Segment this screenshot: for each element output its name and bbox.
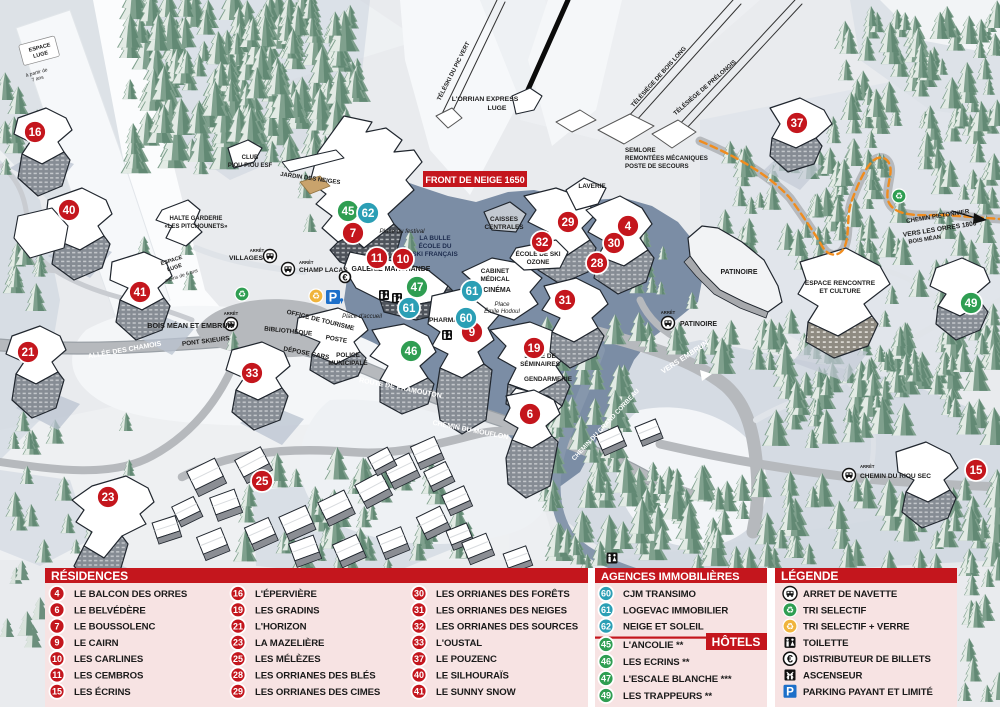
- svg-text:ARRÊT: ARRÊT: [860, 464, 875, 469]
- svg-text:L'OUSTAL: L'OUSTAL: [436, 638, 482, 649]
- svg-text:POSTE DE SECOURS: POSTE DE SECOURS: [625, 163, 689, 170]
- svg-text:32: 32: [536, 237, 549, 249]
- svg-text:LES ORRIANES DES NEIGES: LES ORRIANES DES NEIGES: [436, 605, 568, 616]
- svg-text:PARKING PAYANT ET LIMITÉ: PARKING PAYANT ET LIMITÉ: [803, 686, 933, 698]
- svg-text:29: 29: [233, 687, 243, 697]
- svg-text:61: 61: [601, 605, 611, 615]
- svg-text:60: 60: [601, 589, 611, 599]
- svg-text:GALERIE MARCHANDE: GALERIE MARCHANDE: [352, 266, 431, 273]
- svg-text:LES ORRIANES DES BLÉS: LES ORRIANES DES BLÉS: [255, 670, 376, 682]
- svg-text:11: 11: [371, 253, 384, 265]
- svg-text:Place: Place: [494, 302, 510, 308]
- svg-text:MUNICIPALE: MUNICIPALE: [328, 360, 368, 367]
- svg-text:61: 61: [403, 303, 416, 315]
- svg-text:LES GRADINS: LES GRADINS: [255, 605, 320, 616]
- svg-text:9: 9: [54, 638, 59, 648]
- svg-text:SKI FRANÇAIS: SKI FRANÇAIS: [412, 251, 458, 258]
- svg-text:VILLAGES: VILLAGES: [229, 255, 263, 262]
- svg-text:33: 33: [414, 638, 424, 648]
- svg-text:ET CULTURE: ET CULTURE: [819, 288, 861, 295]
- svg-text:11: 11: [52, 670, 62, 680]
- svg-text:LÉGENDE: LÉGENDE: [781, 568, 838, 583]
- svg-text:♻: ♻: [786, 605, 794, 615]
- svg-text:LOGEVAC IMMOBILIER: LOGEVAC IMMOBILIER: [623, 605, 728, 616]
- svg-text:CLUB: CLUB: [242, 155, 259, 161]
- svg-text:37: 37: [414, 654, 424, 664]
- svg-text:HÔTELS: HÔTELS: [712, 634, 761, 649]
- svg-text:60: 60: [460, 313, 473, 325]
- svg-text:10: 10: [397, 254, 410, 266]
- svg-text:GENDARMERIE: GENDARMERIE: [524, 376, 573, 383]
- svg-text:REMONTÉES MÉCANIQUES: REMONTÉES MÉCANIQUES: [625, 154, 708, 162]
- svg-text:LUGE: LUGE: [488, 105, 507, 112]
- svg-text:47: 47: [601, 674, 611, 684]
- svg-text:40: 40: [63, 205, 76, 217]
- svg-text:LE BELVÉDÈRE: LE BELVÉDÈRE: [74, 604, 146, 616]
- svg-text:POLICE: POLICE: [336, 352, 361, 359]
- svg-text:25: 25: [233, 654, 243, 664]
- svg-text:45: 45: [601, 640, 611, 650]
- svg-text:19: 19: [528, 343, 541, 355]
- svg-text:LE SILHOURAÏS: LE SILHOURAÏS: [436, 671, 509, 682]
- svg-text:21: 21: [22, 347, 35, 359]
- svg-text:62: 62: [601, 621, 611, 631]
- svg-text:L'ANCOLIE **: L'ANCOLIE **: [623, 640, 684, 651]
- svg-text:LES ORRIANES DES CIMES: LES ORRIANES DES CIMES: [255, 687, 381, 698]
- svg-text:SÉMINAIRES: SÉMINAIRES: [520, 359, 561, 368]
- svg-text:33: 33: [246, 368, 259, 380]
- svg-text:L'ESCALE BLANCHE ***: L'ESCALE BLANCHE ***: [623, 674, 732, 685]
- svg-text:CHEMIN DU RIOU SEC: CHEMIN DU RIOU SEC: [860, 473, 931, 480]
- svg-text:LES ORRIANES DES FORÊTS: LES ORRIANES DES FORÊTS: [436, 588, 570, 600]
- svg-text:10: 10: [52, 654, 62, 664]
- svg-text:19: 19: [233, 605, 243, 615]
- svg-text:46: 46: [405, 346, 418, 358]
- svg-text:AGENCES IMMOBILIÈRES: AGENCES IMMOBILIÈRES: [601, 570, 740, 583]
- svg-text:21: 21: [233, 621, 243, 631]
- svg-text:41: 41: [414, 687, 424, 697]
- svg-text:29: 29: [562, 217, 575, 229]
- svg-text:TRI SELECTIF: TRI SELECTIF: [803, 605, 867, 616]
- svg-text:PATINOIRE: PATINOIRE: [720, 269, 757, 276]
- svg-text:ARRÊT: ARRÊT: [250, 248, 265, 253]
- svg-text:PIOU PIOU ESF: PIOU PIOU ESF: [228, 163, 273, 169]
- svg-text:23: 23: [233, 638, 243, 648]
- svg-text:DISTRIBUTEUR DE BILLETS: DISTRIBUTEUR DE BILLETS: [803, 654, 931, 665]
- svg-text:ESPACE RENCONTRE: ESPACE RENCONTRE: [805, 280, 876, 287]
- svg-text:♻: ♻: [786, 621, 794, 631]
- svg-text:L'HORIZON: L'HORIZON: [255, 622, 307, 633]
- svg-text:ARRÊT: ARRÊT: [661, 310, 676, 315]
- svg-text:LE BOUSSOLENC: LE BOUSSOLENC: [74, 622, 155, 633]
- svg-text:NEIGE ET SOLEIL: NEIGE ET SOLEIL: [623, 622, 704, 633]
- svg-text:FRONT DE NEIGE 1650: FRONT DE NEIGE 1650: [425, 175, 524, 185]
- svg-text:61: 61: [466, 286, 479, 298]
- svg-text:31: 31: [414, 605, 424, 615]
- svg-text:LE CAIRN: LE CAIRN: [74, 638, 119, 649]
- svg-text:31: 31: [559, 295, 572, 307]
- svg-text:Place du festival: Place du festival: [379, 228, 425, 235]
- svg-text:28: 28: [591, 258, 604, 270]
- svg-text:37: 37: [791, 118, 804, 130]
- svg-text:LES CARLINES: LES CARLINES: [74, 654, 144, 665]
- svg-text:LA MAZELIÈRE: LA MAZELIÈRE: [255, 637, 325, 649]
- svg-text:MÉDICAL: MÉDICAL: [480, 274, 509, 283]
- svg-text:LA BULLE: LA BULLE: [419, 235, 451, 242]
- svg-text:7: 7: [54, 621, 59, 631]
- svg-text:CJM TRANSIMO: CJM TRANSIMO: [623, 589, 697, 600]
- svg-text:LAVERIE: LAVERIE: [578, 183, 606, 190]
- svg-text:L'ÉPERVIÈRE: L'ÉPERVIÈRE: [255, 588, 317, 600]
- svg-text:49: 49: [965, 298, 978, 310]
- svg-text:OZONE: OZONE: [527, 259, 550, 266]
- svg-text:LES ÉCRINS: LES ÉCRINS: [74, 686, 131, 698]
- svg-text:PATINOIRE: PATINOIRE: [680, 321, 717, 328]
- svg-text:HALTE GARDERIE: HALTE GARDERIE: [170, 216, 223, 222]
- svg-text:46: 46: [601, 657, 611, 667]
- svg-text:TRI SELECTIF + VERRE: TRI SELECTIF + VERRE: [803, 622, 910, 633]
- svg-text:40: 40: [414, 670, 424, 680]
- svg-text:7: 7: [350, 228, 356, 240]
- svg-text:LES ORRIANES DES SOURCES: LES ORRIANES DES SOURCES: [436, 622, 579, 633]
- svg-text:CAISSES: CAISSES: [490, 216, 519, 223]
- svg-text:LE POUZENC: LE POUZENC: [436, 654, 497, 665]
- svg-text:€: €: [787, 654, 793, 666]
- svg-text:LES TRAPPEURS **: LES TRAPPEURS **: [623, 691, 712, 702]
- svg-text:47: 47: [411, 282, 424, 294]
- svg-text:4: 4: [625, 221, 632, 233]
- svg-text:4: 4: [54, 589, 59, 599]
- svg-text:Émile Hodoul: Émile Hodoul: [484, 308, 520, 315]
- svg-text:16: 16: [29, 127, 42, 139]
- svg-text:P: P: [329, 290, 337, 304]
- svg-text:€: €: [342, 272, 348, 282]
- svg-text:RÉSIDENCES: RÉSIDENCES: [51, 568, 128, 583]
- svg-text:ARRÊT: ARRÊT: [224, 311, 239, 316]
- svg-text:25: 25: [256, 476, 269, 488]
- svg-text:♻: ♻: [238, 289, 246, 299]
- svg-text:TOILETTE: TOILETTE: [803, 638, 849, 649]
- svg-text:♻: ♻: [895, 191, 903, 201]
- svg-text:15: 15: [970, 465, 983, 477]
- svg-text:P: P: [786, 685, 794, 698]
- svg-text:LE SUNNY SNOW: LE SUNNY SNOW: [436, 687, 517, 698]
- svg-text:45: 45: [342, 206, 355, 218]
- svg-text:CABINET: CABINET: [481, 268, 509, 275]
- svg-text:32: 32: [414, 621, 424, 631]
- svg-text:CINÉMA: CINÉMA: [483, 285, 511, 294]
- svg-text:30: 30: [414, 589, 424, 599]
- svg-text:ARRET DE NAVETTE: ARRET DE NAVETTE: [803, 589, 898, 600]
- svg-text:30: 30: [608, 238, 621, 250]
- svg-text:ARRÊT: ARRÊT: [299, 260, 314, 265]
- svg-text:23: 23: [102, 492, 115, 504]
- svg-text:BOIS MÉAN ET EMBRUN: BOIS MÉAN ET EMBRUN: [147, 321, 232, 330]
- svg-text:ÉCOLE DU: ÉCOLE DU: [418, 241, 451, 250]
- svg-text:49: 49: [601, 691, 611, 701]
- svg-text:LES ECRINS **: LES ECRINS **: [623, 657, 690, 668]
- svg-text:15: 15: [52, 687, 62, 697]
- svg-text:CENTRALES: CENTRALES: [484, 224, 524, 231]
- svg-text:LE BALCON DES ORRES: LE BALCON DES ORRES: [74, 589, 188, 600]
- svg-text:LES MÉLÈZES: LES MÉLÈZES: [255, 653, 321, 665]
- svg-text:62: 62: [362, 208, 375, 220]
- svg-text:16: 16: [233, 589, 243, 599]
- svg-text:ASCENSEUR: ASCENSEUR: [803, 671, 863, 682]
- svg-text:LES CEMBROS: LES CEMBROS: [74, 671, 144, 682]
- svg-text:«LES PITCHOUNETS»: «LES PITCHOUNETS»: [164, 224, 228, 230]
- svg-text:♻: ♻: [312, 291, 320, 301]
- svg-text:28: 28: [233, 670, 243, 680]
- svg-text:L'ORRIAN EXPRESS: L'ORRIAN EXPRESS: [452, 96, 519, 103]
- svg-text:6: 6: [527, 409, 533, 421]
- svg-text:41: 41: [134, 287, 147, 299]
- svg-text:6: 6: [54, 605, 59, 615]
- svg-text:Place d'accueil: Place d'accueil: [342, 314, 383, 320]
- svg-text:SEMLORE: SEMLORE: [625, 147, 656, 154]
